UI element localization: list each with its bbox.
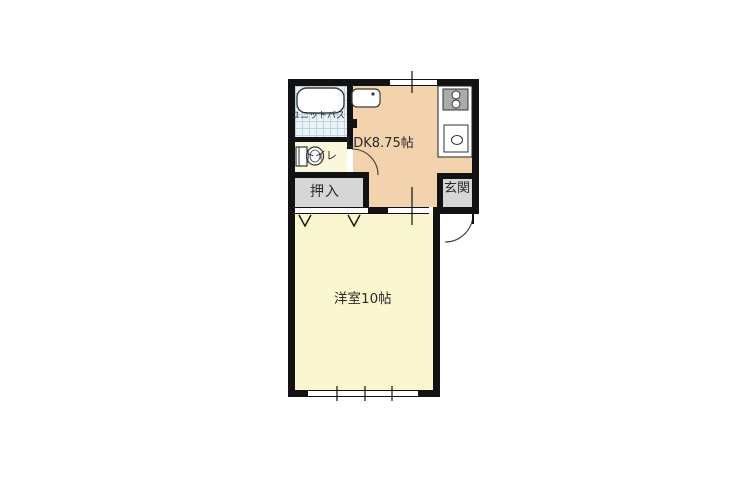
- kitchen-sink-icon: [444, 125, 468, 152]
- bathtub-icon: [297, 88, 344, 113]
- unit-bath-label: ユニットバス: [289, 112, 347, 121]
- window-bottom-ticks: [337, 386, 392, 401]
- closet-fusuma-chevrons: [299, 215, 360, 226]
- gas-stove-two-burner-icon: [443, 89, 468, 110]
- western-room-label: 洋室10帖: [334, 293, 392, 307]
- entrance-label: 玄関: [444, 182, 470, 195]
- entrance-door-swing-arc: [445, 214, 473, 242]
- ldk-label: LDK8.75帖: [346, 137, 414, 150]
- bath-door-handle-icon: [352, 119, 357, 128]
- toilet-label: トイレ: [304, 150, 337, 161]
- fixtures-overlay: [0, 0, 745, 485]
- toilet-door-swing-arc: [352, 149, 378, 175]
- floorplan-canvas: ユニットバス トイレ LDK8.75帖 押入 玄関 洋室10帖: [0, 0, 745, 485]
- closet-label: 押入: [310, 185, 340, 199]
- washbasin-sink-icon: [352, 89, 380, 107]
